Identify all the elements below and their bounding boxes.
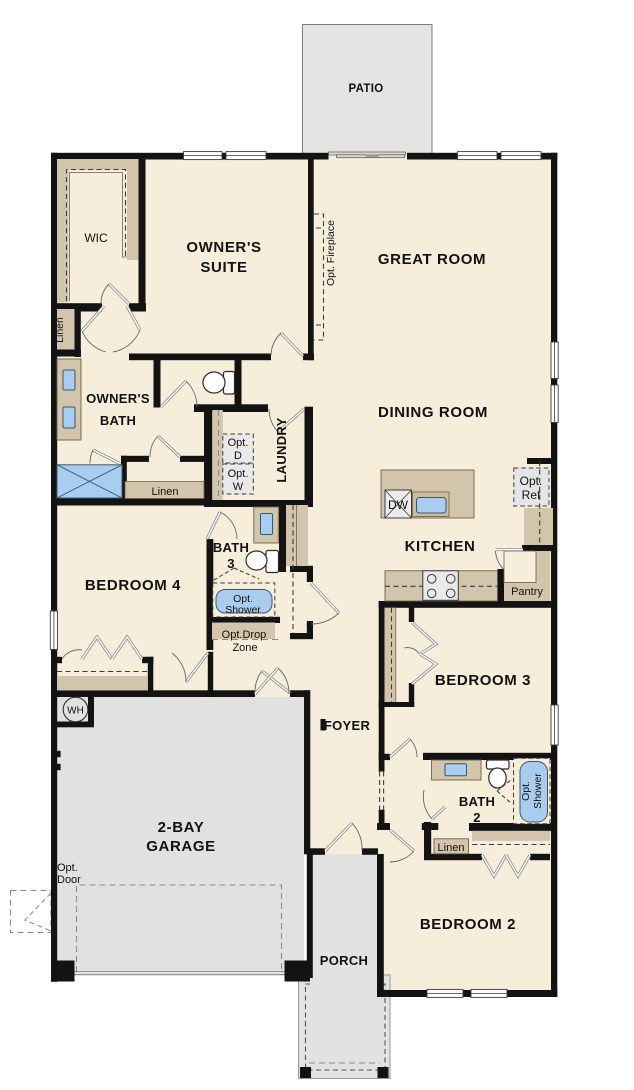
svg-text:Door: Door <box>57 874 81 886</box>
svg-text:W: W <box>233 481 244 493</box>
svg-text:Opt.: Opt. <box>228 437 249 449</box>
svg-text:BATH: BATH <box>213 540 249 555</box>
svg-text:DINING ROOM: DINING ROOM <box>378 404 488 421</box>
svg-text:Linen: Linen <box>54 317 66 343</box>
svg-text:LAUNDRY: LAUNDRY <box>274 417 289 482</box>
svg-text:PATIO: PATIO <box>349 83 384 95</box>
svg-text:BATH: BATH <box>459 794 495 809</box>
svg-text:Opt.: Opt. <box>520 781 532 801</box>
svg-text:BATH: BATH <box>100 413 136 428</box>
svg-text:Ref: Ref <box>522 488 541 502</box>
svg-text:GARAGE: GARAGE <box>146 838 215 855</box>
svg-text:DW: DW <box>388 498 409 512</box>
svg-text:BEDROOM 4: BEDROOM 4 <box>85 577 181 594</box>
svg-text:KITCHEN: KITCHEN <box>405 538 476 555</box>
svg-text:Pantry: Pantry <box>511 586 543 598</box>
svg-text:OWNER'S: OWNER'S <box>186 239 261 256</box>
svg-text:Zone: Zone <box>232 642 257 654</box>
svg-text:Shower: Shower <box>225 604 261 616</box>
svg-text:FOYER: FOYER <box>324 718 371 733</box>
svg-text:WIC: WIC <box>84 231 108 245</box>
svg-text:PORCH: PORCH <box>320 953 368 968</box>
svg-text:2-BAY: 2-BAY <box>158 819 205 836</box>
svg-text:Linen: Linen <box>438 842 465 854</box>
svg-text:BEDROOM 3: BEDROOM 3 <box>435 672 531 689</box>
svg-text:D: D <box>234 450 242 462</box>
svg-text:SUITE: SUITE <box>200 259 247 276</box>
svg-text:Opt.Drop: Opt.Drop <box>222 629 267 641</box>
svg-text:GREAT ROOM: GREAT ROOM <box>378 251 486 268</box>
svg-text:OWNER'S: OWNER'S <box>86 391 150 406</box>
svg-text:WH: WH <box>67 706 84 717</box>
svg-text:Opt.: Opt. <box>57 862 78 874</box>
svg-text:Opt. Fireplace: Opt. Fireplace <box>325 220 337 286</box>
svg-text:Shower: Shower <box>532 773 544 809</box>
svg-text:Linen: Linen <box>152 486 179 498</box>
svg-text:Opt.: Opt. <box>520 474 543 488</box>
svg-text:Opt.: Opt. <box>228 468 249 480</box>
svg-text:2: 2 <box>473 810 481 825</box>
svg-text:BEDROOM 2: BEDROOM 2 <box>420 916 516 933</box>
svg-text:3: 3 <box>227 556 235 571</box>
